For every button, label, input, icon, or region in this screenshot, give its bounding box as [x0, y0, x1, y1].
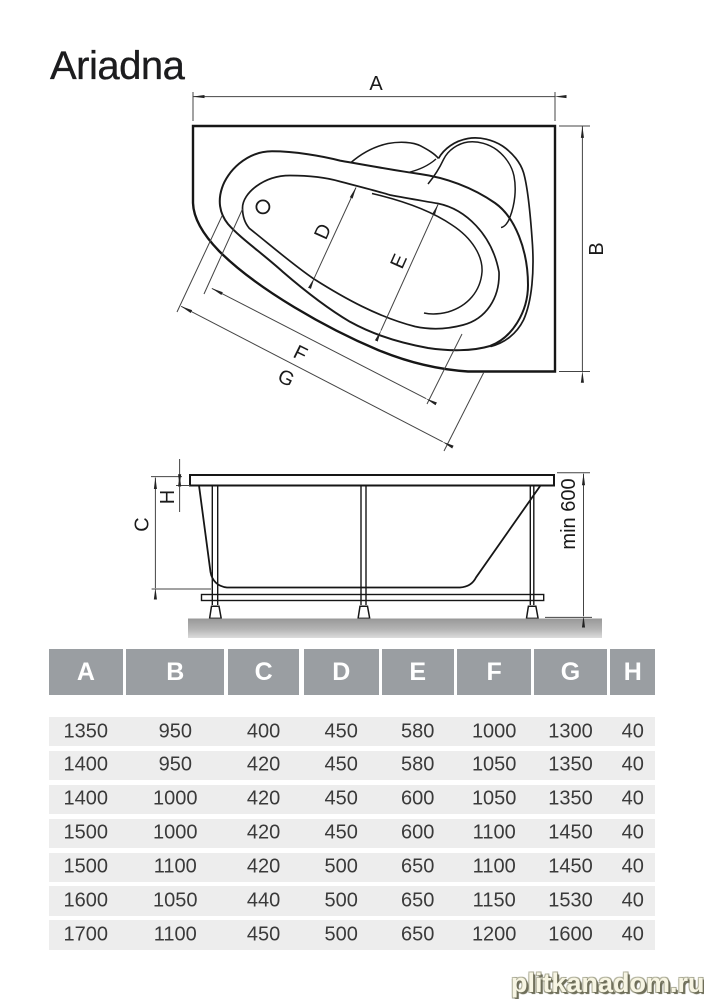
svg-text:E: E	[386, 251, 412, 272]
svg-text:F: F	[290, 341, 311, 366]
svg-text:A: A	[369, 73, 383, 95]
svg-text:G: G	[274, 365, 298, 392]
svg-text:B: B	[586, 242, 608, 255]
svg-text:H: H	[157, 490, 179, 504]
svg-text:C: C	[132, 517, 154, 531]
svg-text:min 600: min 600	[558, 478, 580, 549]
